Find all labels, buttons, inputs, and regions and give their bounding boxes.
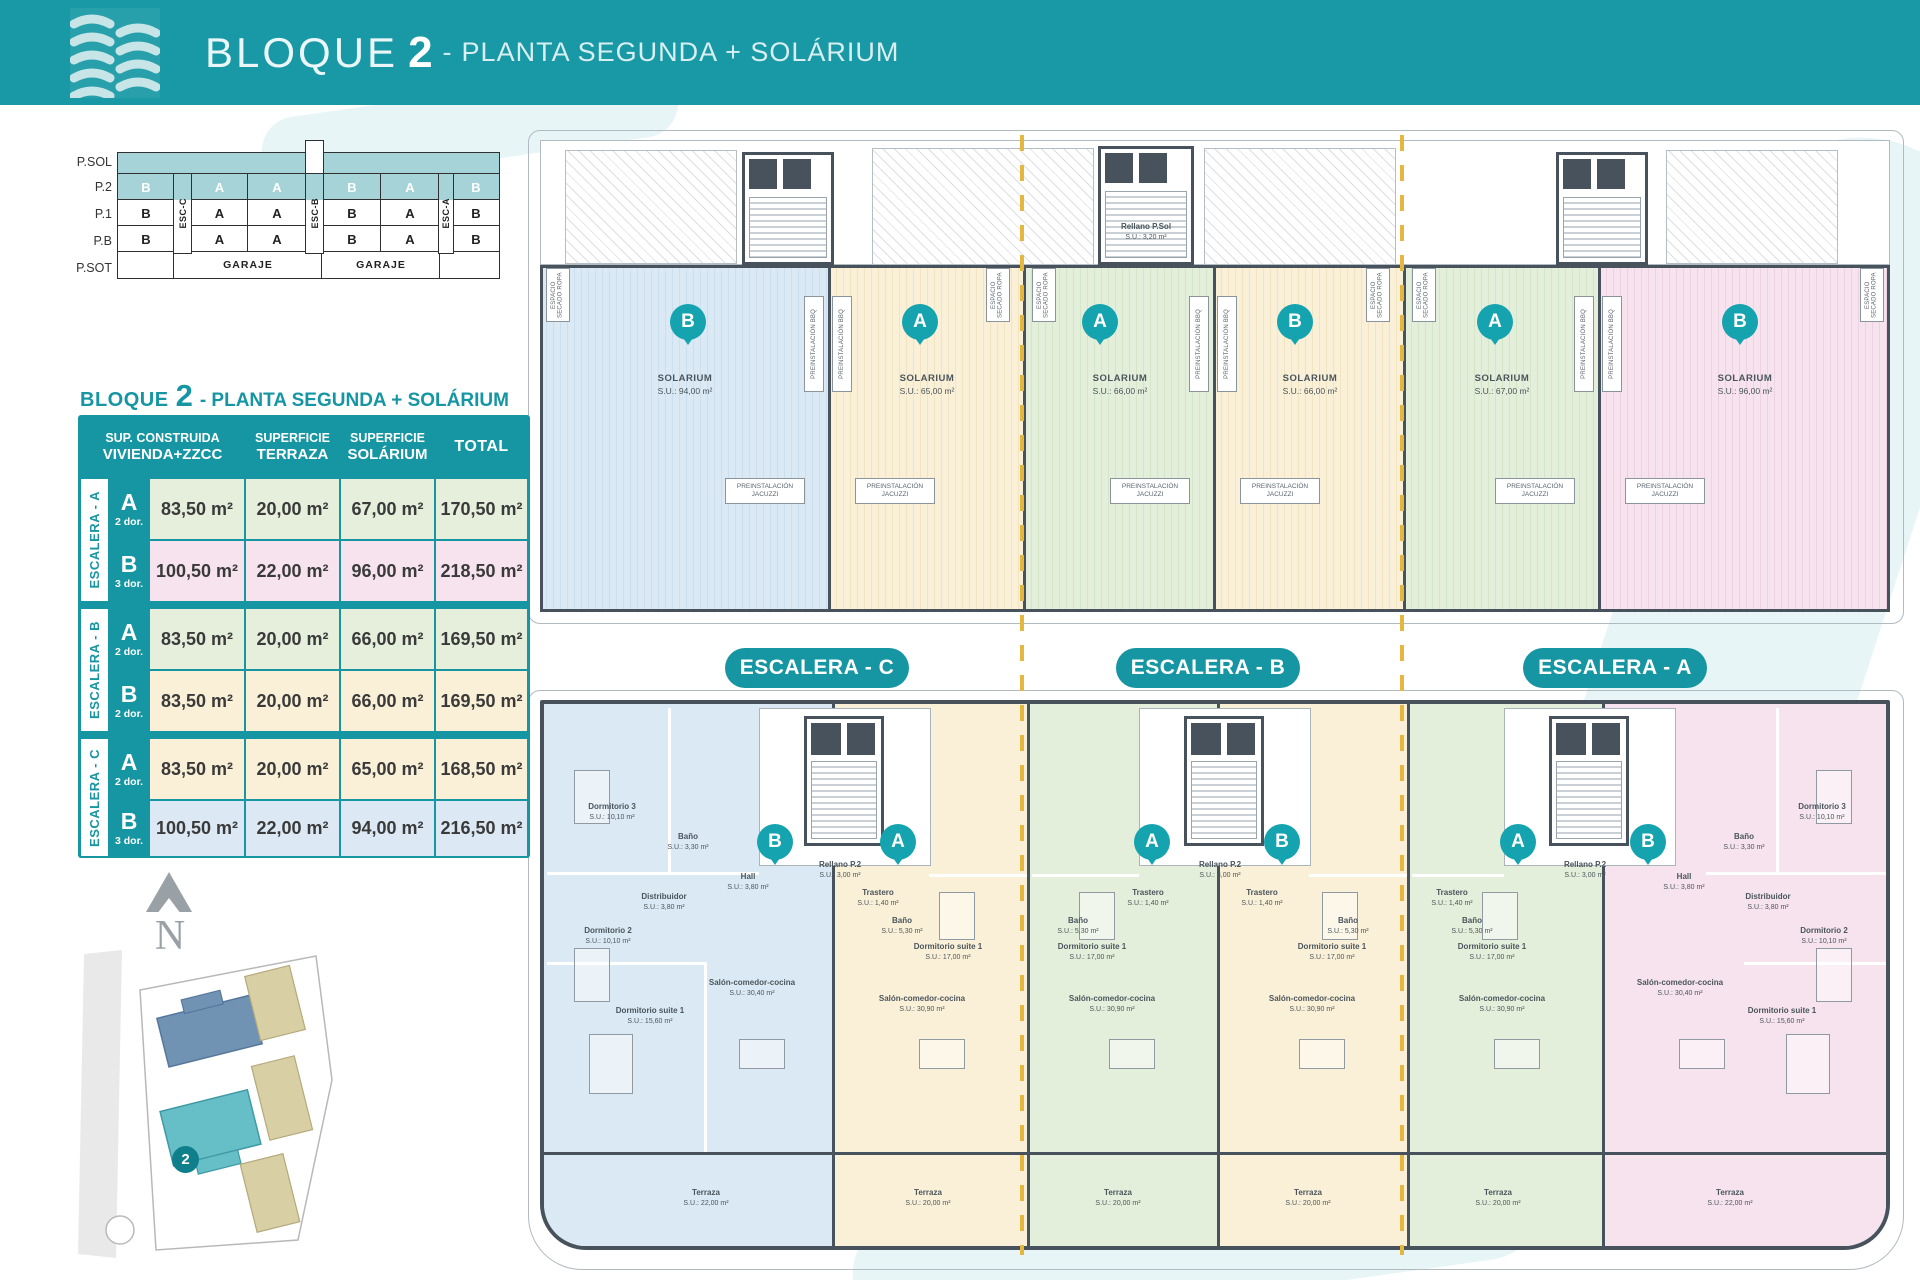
partition: [1776, 708, 1779, 872]
partition: [704, 962, 707, 1152]
party-wall: [828, 265, 831, 612]
stair-core-a: [1556, 152, 1648, 265]
solarium-label: SOLARIUMS.U.: 96,00 m²: [1718, 373, 1773, 397]
solarium-label: SOLARIUMS.U.: 65,00 m²: [900, 373, 955, 397]
room-label: TerrazaS.U.: 20,00 m²: [1095, 1188, 1140, 1208]
room-label: HallS.U.: 3,80 m²: [1663, 872, 1704, 892]
bbq-label: PREINSTALACIÓN BBQ: [832, 296, 852, 392]
value-cell: 83,50 m²: [150, 671, 244, 731]
furniture-table: [1679, 1039, 1725, 1069]
unit-badge: B: [1264, 824, 1300, 860]
partition: [1706, 872, 1890, 875]
expansion-joint-line: [1020, 135, 1024, 1255]
north-letter: N: [147, 912, 193, 960]
area-table: SUP. CONSTRUIDAVIVIENDA+ZZCC SUPERFICIET…: [78, 415, 530, 858]
jacuzzi-label: PREINSTALACIÓNJACUZZI: [1625, 478, 1705, 504]
value-cell: 20,00 m²: [246, 479, 339, 539]
value-cell: 169,50 m²: [436, 671, 527, 731]
brand-logo: [70, 8, 160, 98]
stack-cell: B: [452, 225, 500, 253]
value-cell: 216,50 m²: [436, 801, 527, 856]
area-table-title-num: 2: [176, 380, 193, 411]
value-cell: 169,50 m²: [436, 609, 527, 669]
stack-cell: B: [117, 173, 175, 201]
stack-cell: A: [247, 225, 307, 253]
header-bar: BLOQUE 2 - PLANTA SEGUNDA + SOLÁRIUM: [0, 0, 1920, 105]
title-separator: -: [443, 37, 452, 68]
jacuzzi-label: PREINSTALACIÓNJACUZZI: [855, 478, 935, 504]
room-label: Dormitorio suite 1S.U.: 15,60 m²: [616, 1006, 684, 1026]
unit-badge-cell: B3 dor.: [110, 801, 148, 856]
roof-hatch: [565, 150, 737, 264]
unit-badge-cell: A2 dor.: [110, 609, 148, 669]
value-cell: 83,50 m²: [150, 609, 244, 669]
room-label: TrasteroS.U.: 1,40 m²: [1127, 888, 1168, 908]
value-cell: 100,50 m²: [150, 541, 244, 601]
value-cell: 96,00 m²: [341, 541, 434, 601]
unit-badge: B: [1277, 304, 1313, 340]
jacuzzi-label: PREINSTALACIÓNJACUZZI: [1240, 478, 1320, 504]
room-label: Salón-comedor-cocinaS.U.: 30,90 m²: [1269, 994, 1355, 1014]
area-table-title: BLOQUE 2 - PLANTA SEGUNDA + SOLÁRIUM: [80, 380, 509, 412]
partition: [1412, 874, 1504, 877]
furniture-bed: [1816, 948, 1852, 1002]
room-label: Dormitorio suite 1S.U.: 15,60 m²: [1748, 1006, 1816, 1026]
group-label-escalera-b: ESCALERA - B: [81, 609, 108, 731]
stack-cell-empty: [439, 251, 500, 279]
rellano-label: Rellano P.2S.U.: 3,00 m²: [819, 860, 861, 880]
room-label: HallS.U.: 3,80 m²: [727, 872, 768, 892]
stack-cell: A: [380, 225, 440, 253]
col-header-total: TOTAL: [436, 418, 527, 477]
furniture-bed: [574, 948, 610, 1002]
value-cell: 100,50 m²: [150, 801, 244, 856]
party-wall: [1598, 265, 1601, 612]
stack-esc-label: ESC-C: [178, 198, 188, 229]
jacuzzi-label: PREINSTALACIÓNJACUZZI: [1495, 478, 1575, 504]
stack-cell: A: [190, 199, 249, 227]
unit-badge: A: [1082, 304, 1118, 340]
bbq-label: PREINSTALACIÓN BBQ: [1189, 296, 1209, 392]
room-label: BañoS.U.: 3,30 m²: [667, 832, 708, 852]
unit-badge: A: [1477, 304, 1513, 340]
room-label: BañoS.U.: 5,30 m²: [1327, 916, 1368, 936]
value-cell: 94,00 m²: [341, 801, 434, 856]
stack-cell: A: [247, 199, 307, 227]
furniture-table: [919, 1039, 965, 1069]
pill-escalera-a: ESCALERA - A: [1523, 648, 1707, 688]
stack-cell: B: [117, 225, 175, 253]
furniture-bed: [939, 892, 975, 940]
furniture-bed: [1786, 1034, 1830, 1094]
unit-badge-cell: A2 dor.: [110, 479, 148, 539]
site-road: [78, 950, 122, 1258]
stack-esc-column: ESC-A: [438, 173, 454, 254]
room-label: TerrazaS.U.: 22,00 m²: [1707, 1188, 1752, 1208]
page-title: BLOQUE 2 - PLANTA SEGUNDA + SOLÁRIUM: [205, 0, 899, 105]
floor-plan: [540, 700, 1890, 1250]
furniture-table: [1109, 1039, 1155, 1069]
room-label: Dormitorio suite 1S.U.: 17,00 m²: [914, 942, 982, 962]
room-label: TerrazaS.U.: 20,00 m²: [1285, 1188, 1330, 1208]
stack-esc-column: ESC-C: [173, 173, 192, 254]
bbq-label: PREINSTALACIÓN BBQ: [1217, 296, 1237, 392]
stack-cell: A: [380, 199, 440, 227]
party-wall: [1407, 704, 1410, 1250]
value-cell: 66,00 m²: [341, 671, 434, 731]
partition: [547, 962, 704, 965]
partition: [1032, 874, 1139, 877]
room-label: TrasteroS.U.: 1,40 m²: [857, 888, 898, 908]
title-number: 2: [408, 28, 432, 78]
room-label: TerrazaS.U.: 22,00 m²: [683, 1188, 728, 1208]
party-wall: [1027, 704, 1030, 1250]
room-label: Dormitorio suite 1S.U.: 17,00 m²: [1298, 942, 1366, 962]
stack-cell: A: [247, 173, 307, 201]
furniture-bed: [589, 1034, 633, 1094]
stack-cell: B: [322, 199, 382, 227]
unit-badge-cell: B3 dor.: [110, 541, 148, 601]
room-label: Salón-comedor-cocinaS.U.: 30,40 m²: [1637, 978, 1723, 998]
stack-row-label: P.1: [64, 207, 112, 221]
stack-cell: B: [322, 225, 382, 253]
stack-cell-empty: [117, 251, 175, 279]
partition: [929, 874, 1027, 877]
room-label: BañoS.U.: 5,30 m²: [1451, 916, 1492, 936]
furniture-table: [1299, 1039, 1345, 1069]
room-label: DistribuidorS.U.: 3,80 m²: [1745, 892, 1790, 912]
unit-badge: B: [757, 824, 793, 860]
title-subtitle: PLANTA SEGUNDA + SOLÁRIUM: [462, 37, 900, 68]
room-label: TrasteroS.U.: 1,40 m²: [1241, 888, 1282, 908]
col-header-construida: SUP. CONSTRUIDAVIVIENDA+ZZCC: [81, 418, 244, 477]
area-table-title-post: - PLANTA SEGUNDA + SOLÁRIUM: [200, 390, 509, 412]
stack-esc-label: ESC-A: [441, 198, 451, 229]
unit-badge: B: [1630, 824, 1666, 860]
title-block: BLOQUE: [205, 29, 398, 77]
room-label: BañoS.U.: 5,30 m²: [1057, 916, 1098, 936]
stack-garaje-cell: GARAJE: [173, 251, 323, 279]
group-label-escalera-c: ESCALERA - C: [81, 739, 108, 856]
room-label: Dormitorio 2S.U.: 10,10 m²: [1800, 926, 1848, 946]
unit-badge-cell: A2 dor.: [110, 739, 148, 799]
secado-ropa-label: ESPACIO SECADO ROPA: [1860, 268, 1884, 322]
stair-core-a: [1549, 716, 1629, 846]
rellano-label: Rellano P.2S.U.: 3,00 m²: [1199, 860, 1241, 880]
solarium-label: SOLARIUMS.U.: 66,00 m²: [1093, 373, 1148, 397]
room-label: Dormitorio 3S.U.: 10,10 m²: [588, 802, 636, 822]
rellano-label: Rellano P.2S.U.: 3,00 m²: [1564, 860, 1606, 880]
stair-core-b: [1098, 146, 1194, 265]
stack-row-label: P.SOL: [64, 155, 112, 169]
value-cell: 22,00 m²: [246, 541, 339, 601]
secado-ropa-label: ESPACIO SECADO ROPA: [1366, 268, 1390, 322]
stack-cell: B: [117, 199, 175, 227]
secado-ropa-label: ESPACIO SECADO ROPA: [986, 268, 1010, 322]
value-cell: 66,00 m²: [341, 609, 434, 669]
stair-core-c: [742, 152, 834, 265]
room-label: Dormitorio 2S.U.: 10,10 m²: [584, 926, 632, 946]
room-label: TrasteroS.U.: 1,40 m²: [1431, 888, 1472, 908]
stack-esc-shaft: [305, 140, 324, 175]
unit-badge: A: [1500, 824, 1536, 860]
stack-row-label: P.SOT: [64, 261, 112, 275]
roof-hatch: [872, 148, 1094, 265]
unit-badge-cell: B2 dor.: [110, 671, 148, 731]
stack-cell: A: [190, 225, 249, 253]
unit-badge: B: [1722, 304, 1758, 340]
page: BLOQUE 2 - PLANTA SEGUNDA + SOLÁRIUM P.S…: [0, 0, 1920, 1280]
value-cell: 20,00 m²: [246, 739, 339, 799]
value-cell: 20,00 m²: [246, 609, 339, 669]
unit-badge: B: [670, 304, 706, 340]
pill-escalera-c: ESCALERA - C: [725, 648, 909, 688]
stack-esc-column: ESC-B: [305, 173, 324, 254]
roof-hatch: [1204, 148, 1396, 265]
room-label: BañoS.U.: 3,30 m²: [1723, 832, 1764, 852]
group-label-escalera-a: ESCALERA - A: [81, 479, 108, 601]
stack-esc-label: ESC-B: [310, 198, 320, 229]
room-label: Dormitorio suite 1S.U.: 17,00 m²: [1458, 942, 1526, 962]
expansion-joint-line: [1400, 135, 1404, 1255]
terrace-wall: [544, 1152, 1890, 1155]
stack-cell: B: [452, 199, 500, 227]
bbq-label: PREINSTALACIÓN BBQ: [1574, 296, 1594, 392]
jacuzzi-label: PREINSTALACIÓNJACUZZI: [1110, 478, 1190, 504]
solarium-label: SOLARIUMS.U.: 94,00 m²: [658, 373, 713, 397]
secado-ropa-label: ESPACIO SECADO ROPA: [1412, 268, 1436, 322]
jacuzzi-label: PREINSTALACIÓNJACUZZI: [725, 478, 805, 504]
value-cell: 65,00 m²: [341, 739, 434, 799]
partition: [1309, 874, 1407, 877]
stair-core-c: [804, 716, 884, 846]
stack-row-label: P.B: [64, 234, 112, 248]
stack-garaje-cell: GARAJE: [321, 251, 441, 279]
room-label: Salón-comedor-cocinaS.U.: 30,90 m²: [879, 994, 965, 1014]
solarium-plan: [540, 140, 1890, 612]
stack-cell: B: [322, 173, 382, 201]
secado-ropa-label: ESPACIO SECADO ROPA: [546, 268, 570, 322]
value-cell: 67,00 m²: [341, 479, 434, 539]
value-cell: 83,50 m²: [150, 739, 244, 799]
col-header-solarium: SUPERFICIESOLÁRIUM: [341, 418, 434, 477]
bbq-label: PREINSTALACIÓN BBQ: [1602, 296, 1622, 392]
stack-row-label: P.2: [64, 180, 112, 194]
value-cell: 20,00 m²: [246, 671, 339, 731]
col-header-terraza: SUPERFICIETERRAZA: [246, 418, 339, 477]
bbq-label: PREINSTALACIÓN BBQ: [804, 296, 824, 392]
room-label: TerrazaS.U.: 20,00 m²: [905, 1188, 950, 1208]
value-cell: 83,50 m²: [150, 479, 244, 539]
stair-core-b: [1184, 716, 1264, 846]
room-label: Dormitorio suite 1S.U.: 17,00 m²: [1058, 942, 1126, 962]
value-cell: 170,50 m²: [436, 479, 527, 539]
party-wall: [1213, 265, 1216, 612]
stack-cell: B: [452, 173, 500, 201]
room-label: Salón-comedor-cocinaS.U.: 30,40 m²: [709, 978, 795, 998]
furniture-table: [739, 1039, 785, 1069]
room-label: BañoS.U.: 5,30 m²: [881, 916, 922, 936]
value-cell: 218,50 m²: [436, 541, 527, 601]
site-plan: [70, 948, 340, 1260]
site-block-badge: 2: [172, 1146, 199, 1173]
unit-badge: A: [902, 304, 938, 340]
stack-cell: A: [190, 173, 249, 201]
waves-logo-icon: [70, 8, 160, 98]
stack-cell: A: [380, 173, 440, 201]
unit-badge: A: [880, 824, 916, 860]
room-label: Dormitorio 3S.U.: 10,10 m²: [1798, 802, 1846, 822]
room-label: TerrazaS.U.: 20,00 m²: [1475, 1188, 1520, 1208]
furniture-table: [1494, 1039, 1540, 1069]
room-label: Salón-comedor-cocinaS.U.: 30,90 m²: [1069, 994, 1155, 1014]
rellano-sol-label: Rellano P.SolS.U.: 3,20 m²: [1121, 222, 1171, 242]
value-cell: 168,50 m²: [436, 739, 527, 799]
area-table-title-pre: BLOQUE: [80, 389, 169, 412]
site-roundabout: [106, 1216, 134, 1244]
roof-hatch: [1666, 150, 1838, 264]
value-cell: 22,00 m²: [246, 801, 339, 856]
secado-ropa-label: ESPACIO SECADO ROPA: [1032, 268, 1056, 322]
solarium-label: SOLARIUMS.U.: 66,00 m²: [1283, 373, 1338, 397]
room-label: Salón-comedor-cocinaS.U.: 30,90 m²: [1459, 994, 1545, 1014]
solarium-label: SOLARIUMS.U.: 67,00 m²: [1475, 373, 1530, 397]
pill-escalera-b: ESCALERA - B: [1116, 648, 1300, 688]
unit-badge: A: [1134, 824, 1170, 860]
room-label: DistribuidorS.U.: 3,80 m²: [641, 892, 686, 912]
